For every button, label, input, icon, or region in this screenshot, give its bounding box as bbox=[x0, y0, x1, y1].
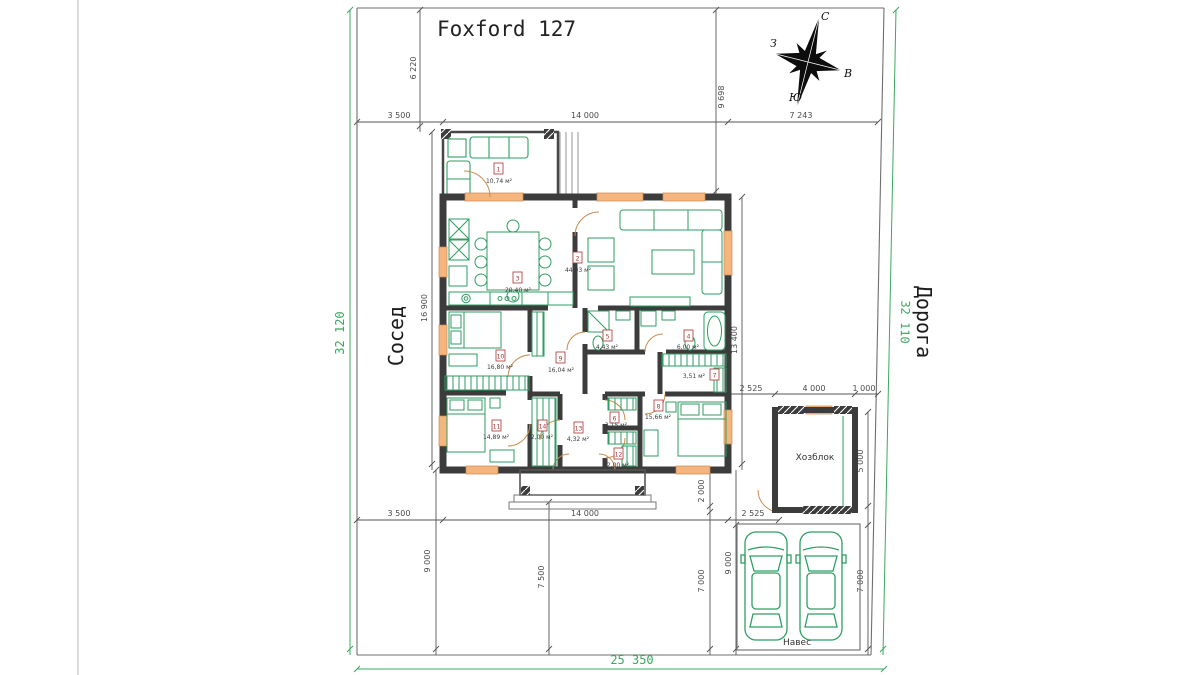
room-tags: 1 10,74 м² 2 44,93 м² 3 20,40 м² 4 6,00 … bbox=[483, 163, 719, 469]
plan-title: Foxford 127 bbox=[437, 17, 576, 41]
dim-backyard-depth: 9 000 bbox=[423, 550, 432, 573]
svg-text:7: 7 bbox=[713, 373, 717, 380]
room-tag-wardrobe7: 3,51 м² 7 bbox=[683, 369, 719, 380]
site-dim-left: 32 120 bbox=[333, 311, 347, 354]
dimension-lines bbox=[354, 7, 881, 655]
room-tag-bed10: 10 16,80 м² bbox=[487, 350, 514, 371]
dim-house-width-top: 14 000 bbox=[571, 111, 599, 120]
road-label: Дорога bbox=[912, 286, 936, 358]
dim-shed-bottom-gap: 2 000 bbox=[697, 480, 706, 503]
dim-carport-height: 9 000 bbox=[724, 552, 733, 575]
site-dim-bottom: 25 350 bbox=[610, 653, 653, 667]
terrace-furniture bbox=[447, 137, 528, 196]
svg-text:1: 1 bbox=[497, 167, 501, 174]
svg-text:2: 2 bbox=[576, 256, 580, 263]
svg-text:4,43 м²: 4,43 м² bbox=[596, 344, 619, 351]
svg-text:16,04 м²: 16,04 м² bbox=[548, 367, 575, 374]
svg-text:3: 3 bbox=[516, 276, 520, 283]
room-tag-terrace: 1 10,74 м² bbox=[486, 163, 513, 185]
dim-house-width-bottom: 14 000 bbox=[571, 509, 599, 518]
porch-posts bbox=[521, 486, 644, 495]
svg-text:3,51 м²: 3,51 м² bbox=[683, 373, 706, 380]
svg-text:8: 8 bbox=[657, 404, 661, 411]
compass-north-label: С bbox=[821, 10, 830, 23]
dim-shed-width: 4 000 bbox=[803, 384, 826, 393]
svg-text:2,00 м²: 2,00 м² bbox=[531, 434, 554, 441]
terrace bbox=[441, 129, 578, 197]
room-tag-bath4: 4 6,00 м² bbox=[677, 330, 700, 351]
svg-text:14,89 м²: 14,89 м² bbox=[483, 434, 510, 441]
dim-carport-left-depth: 7 000 bbox=[697, 570, 706, 593]
svg-text:16,80 м²: 16,80 м² bbox=[487, 364, 514, 371]
dim-carport-gap: 2 525 bbox=[742, 509, 765, 518]
porch bbox=[509, 470, 656, 509]
dim-shed-gap: 2 525 bbox=[740, 384, 763, 393]
svg-text:3,15 м²: 3,15 м² bbox=[605, 422, 628, 429]
carport-label: Навес bbox=[783, 638, 811, 648]
dim-house-setback: 9 698 bbox=[717, 86, 726, 109]
shed-label: Хозблок bbox=[796, 453, 835, 463]
room-tag-kitchen: 3 20,40 м² bbox=[505, 272, 532, 294]
svg-text:14: 14 bbox=[539, 424, 547, 431]
car-right bbox=[796, 532, 846, 640]
compass-south-label: Ю bbox=[788, 91, 802, 104]
dim-offset-right-top: 7 243 bbox=[790, 111, 813, 120]
svg-text:10: 10 bbox=[497, 354, 505, 361]
shed: Хозблок bbox=[775, 406, 855, 514]
terrace-stairs bbox=[560, 132, 578, 197]
svg-text:15,66 м²: 15,66 м² bbox=[645, 414, 672, 421]
dim-shed-right-offset: 1 000 bbox=[853, 384, 876, 393]
room-tag-bed11: 11 14,89 м² bbox=[483, 420, 510, 441]
floor-plan-drawing: 32 120 32 110 25 350 Foxford 127 Сосед Д… bbox=[0, 0, 1200, 675]
svg-text:4,32 м²: 4,32 м² bbox=[567, 436, 590, 443]
svg-text:6,00 м²: 6,00 м² bbox=[677, 344, 700, 351]
car-left bbox=[741, 532, 791, 640]
svg-text:2,00 м²: 2,00 м² bbox=[607, 462, 630, 469]
compass-rose: С З В Ю bbox=[764, 9, 852, 115]
site-plan-canvas: 32 120 32 110 25 350 Foxford 127 Сосед Д… bbox=[0, 0, 1200, 675]
dim-offset-left-bottom: 3 500 bbox=[388, 509, 411, 518]
dim-offset-left-top: 3 500 bbox=[388, 111, 411, 120]
svg-text:12: 12 bbox=[615, 452, 623, 459]
room-tag-corridor13: 13 4,32 м² bbox=[567, 422, 590, 443]
svg-text:44,93 м²: 44,93 м² bbox=[565, 267, 592, 274]
room-tag-bath5: 5 4,43 м² bbox=[596, 330, 619, 351]
svg-text:5: 5 bbox=[606, 334, 610, 341]
compass-east-label: В bbox=[843, 67, 852, 80]
room-tag-hall9: 9 16,04 м² bbox=[548, 352, 575, 374]
carport: Навес bbox=[737, 524, 860, 650]
dim-terrace-setback: 6 220 bbox=[409, 57, 418, 80]
dim-house-left-height: 16 900 bbox=[420, 294, 429, 322]
room-tag-bed8: 8 15,66 м² bbox=[645, 400, 672, 421]
svg-text:20,40 м²: 20,40 м² bbox=[505, 287, 532, 294]
compass-west-label: З bbox=[770, 37, 777, 50]
svg-text:10,74 м²: 10,74 м² bbox=[486, 178, 513, 185]
site-dim-right: 32 110 bbox=[898, 300, 913, 344]
svg-text:9: 9 bbox=[559, 356, 563, 363]
dim-porch-to-boundary: 7 500 bbox=[537, 566, 546, 589]
svg-text:13: 13 bbox=[575, 426, 583, 433]
neighbor-label: Сосед bbox=[384, 306, 408, 366]
svg-text:11: 11 bbox=[493, 424, 501, 431]
svg-text:4: 4 bbox=[687, 334, 691, 341]
